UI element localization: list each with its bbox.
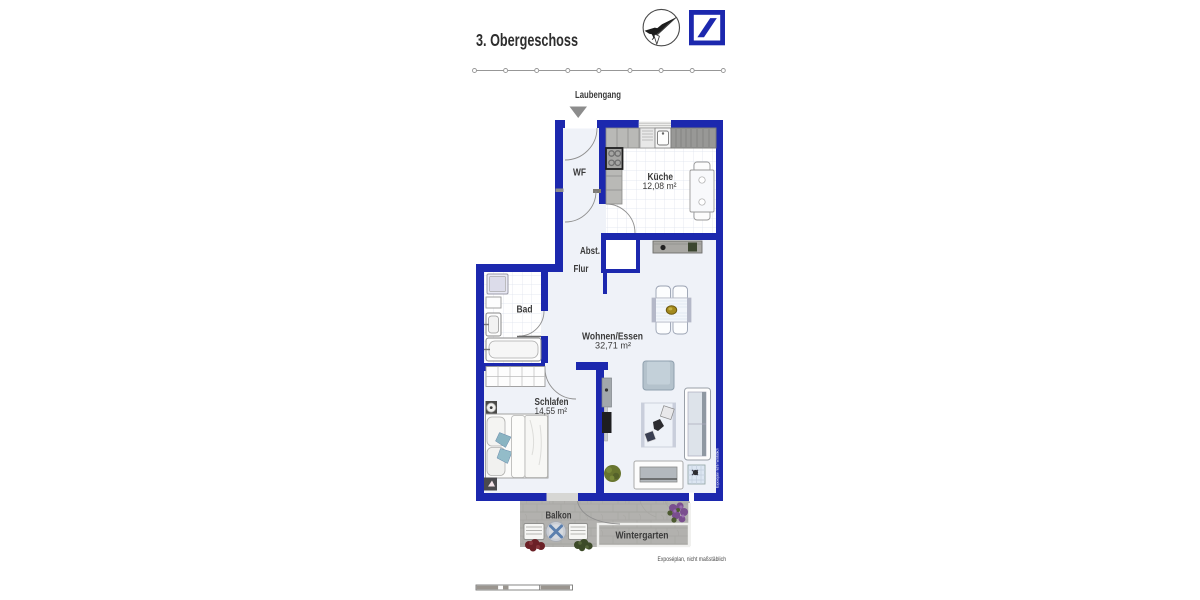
- svg-text:32,71 m²: 32,71 m²: [595, 341, 631, 352]
- svg-text:3. Obergeschoss: 3. Obergeschoss: [476, 30, 578, 50]
- svg-text:Exposéplan, nicht maßstäblich: Exposéplan, nicht maßstäblich: [658, 556, 727, 563]
- svg-text:Flur: Flur: [574, 263, 589, 275]
- svg-text:Abst.: Abst.: [580, 245, 600, 257]
- svg-text:14,55 m²: 14,55 m²: [535, 406, 568, 417]
- svg-text:WF: WF: [573, 167, 586, 179]
- svg-text:Bad: Bad: [517, 304, 533, 316]
- svg-text:Laubengang: Laubengang: [575, 89, 621, 101]
- svg-text:Balkon: Balkon: [546, 510, 572, 522]
- svg-text:Exposéplan nicht maßstäblich: Exposéplan nicht maßstäblich: [716, 448, 720, 488]
- svg-text:12,08 m²: 12,08 m²: [643, 181, 677, 192]
- svg-text:Wintergarten: Wintergarten: [616, 530, 669, 542]
